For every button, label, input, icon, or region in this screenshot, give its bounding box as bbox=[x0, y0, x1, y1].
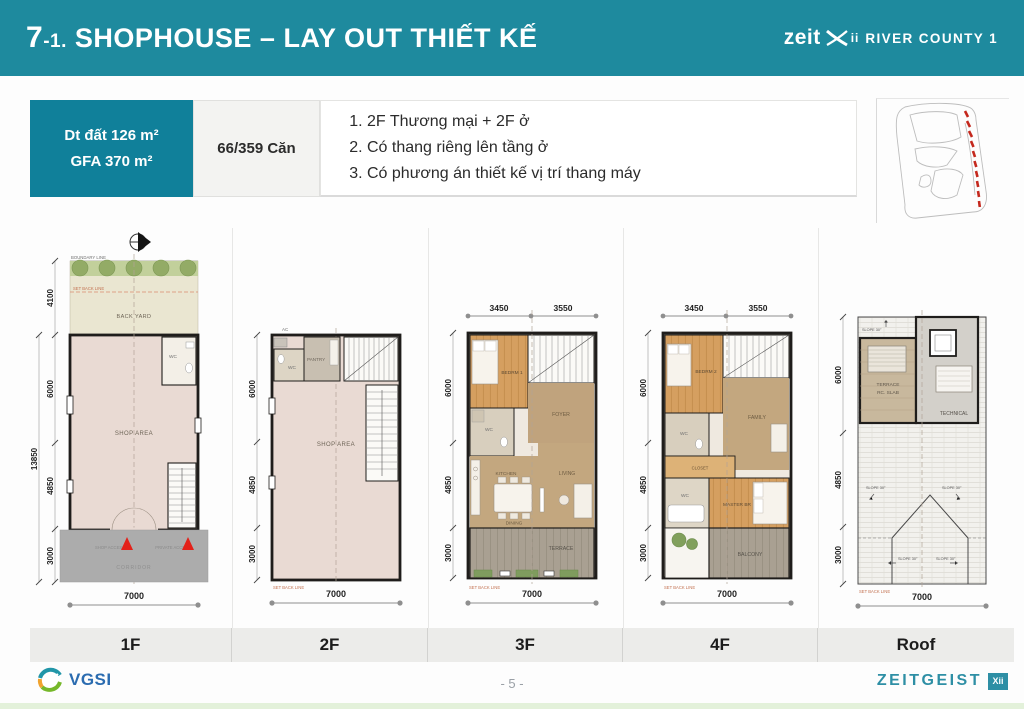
dim-4850: 4850 bbox=[46, 477, 55, 495]
vgsi-swirl-icon bbox=[36, 666, 64, 694]
floor-plan-1f: BOUNDARY LINE SET BACK LINE BACK YARD WC… bbox=[30, 228, 232, 628]
dim-6000: 6000 bbox=[248, 380, 257, 398]
page-number: - 5 - bbox=[0, 676, 1024, 691]
dim-6000: 6000 bbox=[46, 380, 55, 398]
bedroom-1: BEDRM 1 bbox=[470, 335, 528, 408]
dim-4100: 4100 bbox=[46, 289, 55, 307]
corridor-label: CORRIDOR bbox=[116, 565, 151, 571]
wc-lower-label: WC bbox=[681, 493, 690, 499]
site-map-icon bbox=[877, 99, 1009, 223]
terrace-label: TERRACE bbox=[877, 382, 900, 388]
dim-7000: 7000 bbox=[326, 589, 346, 599]
vgsi-name: VGSI bbox=[69, 670, 112, 690]
slope-label: SLOPE 30° bbox=[866, 486, 886, 490]
ac-unit bbox=[274, 338, 287, 347]
page-title: 7-1. SHOPHOUSE – LAY OUT THIẾT KẾ bbox=[26, 21, 537, 55]
setback-line-label: SET BACK LINE bbox=[859, 589, 890, 594]
title-number: 7 bbox=[26, 21, 43, 54]
ac-label: AC bbox=[282, 327, 289, 332]
boundary-line-label: BOUNDARY LINE bbox=[71, 255, 106, 260]
dim-7000: 7000 bbox=[912, 592, 932, 602]
zeit-x-icon bbox=[825, 29, 849, 47]
setback-line-label: SET BACK LINE bbox=[273, 585, 304, 590]
corridor-zone: SHOP ACCESS PRIVATE ACCESS CORRIDOR bbox=[60, 530, 208, 582]
bottom-dimension: 7000 bbox=[660, 589, 793, 606]
bedroom1-label: BEDRM 1 bbox=[501, 370, 523, 376]
sofa bbox=[574, 484, 592, 518]
zeitgeist-name: ZEITGEIST bbox=[877, 672, 982, 690]
roof-plan: TERRACE RC. SLAB TECHNICAL SLOPE 30° SLO… bbox=[818, 228, 1014, 628]
wc-room: WC bbox=[162, 337, 196, 385]
slope-label: SLOPE 30° bbox=[936, 557, 956, 561]
left-dimension-lines bbox=[840, 314, 846, 587]
wc-room: WC bbox=[274, 349, 304, 381]
dim-3000: 3000 bbox=[639, 544, 648, 562]
dim-3450: 3450 bbox=[685, 303, 704, 313]
open-area bbox=[665, 528, 709, 578]
gfa-text: GFA 370 m² bbox=[71, 153, 153, 170]
technical-label: TECHNICAL bbox=[940, 411, 969, 417]
slope-label: SLOPE 30° bbox=[942, 486, 962, 490]
wc-room: WC bbox=[470, 408, 514, 456]
title-subnumber: -1. bbox=[43, 31, 67, 52]
dim-3000: 3000 bbox=[444, 544, 453, 562]
floor-label-4f: 4F bbox=[623, 628, 818, 662]
left-dimension-lines bbox=[645, 330, 651, 581]
north-arrow-icon bbox=[130, 232, 151, 252]
slope-label: SLOPE 30° bbox=[862, 328, 882, 332]
left-dimension-lines bbox=[450, 330, 456, 581]
wc-upper-label: WC bbox=[680, 431, 689, 437]
bottom-dimension: 7000 bbox=[67, 591, 200, 608]
land-area-text: Dt đất 126 m² bbox=[64, 127, 158, 144]
floor-label-1f: 1F bbox=[30, 628, 232, 662]
bottom-dimension: 7000 bbox=[855, 592, 988, 609]
floor-plan-2f: AC WC PANTRY SHOP bbox=[232, 228, 428, 628]
foyer-label: FOYER bbox=[552, 412, 570, 418]
dim-13850: 13850 bbox=[30, 447, 39, 470]
technical-room: TECHNICAL bbox=[916, 317, 978, 423]
balcony-label: BALCONY bbox=[738, 552, 763, 558]
dim-3550: 3550 bbox=[749, 303, 768, 313]
dim-6000: 6000 bbox=[834, 366, 843, 384]
zeitgeist-xii-badge: Xii bbox=[988, 673, 1008, 690]
dim-7000: 7000 bbox=[522, 589, 542, 599]
stair bbox=[168, 463, 196, 528]
dim-7000: 7000 bbox=[717, 589, 737, 599]
dim-4850: 4850 bbox=[248, 476, 257, 494]
bottom-dimension: 7000 bbox=[269, 589, 402, 606]
unit-count-text: 66/359 Căn bbox=[217, 140, 295, 157]
floor-plan-4f: 3450 3550 BEDRM 2 FAMILY WC CLO bbox=[623, 228, 818, 628]
wc-upper-room: WC bbox=[665, 413, 709, 456]
brand-zeit: zeit bbox=[784, 26, 821, 50]
stair bbox=[723, 335, 789, 378]
dim-3450: 3450 bbox=[490, 303, 509, 313]
closet-label: CLOSET bbox=[692, 466, 709, 471]
brand-xii: ii bbox=[851, 31, 860, 45]
stair bbox=[528, 335, 594, 383]
stair-top bbox=[344, 337, 398, 381]
stair-side bbox=[366, 385, 398, 481]
closet-zone: CLOSET bbox=[665, 456, 735, 478]
rc-slab-label: RC. SLAB bbox=[877, 390, 899, 396]
wc-lower-room: WC bbox=[665, 478, 709, 528]
balcony-zone: BALCONY bbox=[709, 528, 789, 578]
wc-label: WC bbox=[288, 365, 297, 371]
zeitgeist-logo: ZEITGEIST Xii bbox=[877, 672, 1008, 690]
brand-logo: zeit ii RIVER COUNTY 1 bbox=[784, 26, 998, 50]
wc-label: WC bbox=[485, 427, 494, 433]
slide: 7-1. SHOPHOUSE – LAY OUT THIẾT KẾ zeit i… bbox=[0, 0, 1024, 709]
site-map-thumbnail bbox=[876, 98, 1009, 223]
title-text: SHOPHOUSE – LAY OUT THIẾT KẾ bbox=[75, 23, 538, 53]
dim-7000: 7000 bbox=[124, 591, 144, 601]
note-item: Có thang riêng lên tầng ở bbox=[367, 135, 641, 161]
dim-4850: 4850 bbox=[834, 471, 843, 489]
bedroom-2: BEDRM 2 bbox=[665, 335, 723, 413]
dim-3550: 3550 bbox=[554, 303, 573, 313]
floor-label-strip: 1F 2F 3F 4F Roof bbox=[30, 628, 1014, 662]
floor-label-roof: Roof bbox=[818, 628, 1014, 662]
terrace-rc-slab: TERRACE RC. SLAB bbox=[860, 338, 916, 423]
terrace-label: TERRACE bbox=[549, 546, 574, 552]
bottom-dimension: 7000 bbox=[465, 589, 598, 606]
notes-box: 2F Thương mại + 2F ở Có thang riêng lên … bbox=[320, 100, 857, 197]
brand-river-county: RIVER COUNTY 1 bbox=[865, 31, 998, 46]
header-bar: 7-1. SHOPHOUSE – LAY OUT THIẾT KẾ zeit i… bbox=[0, 0, 1024, 76]
shop-area-label: SHOP AREA bbox=[115, 431, 153, 437]
dim-3000: 3000 bbox=[834, 546, 843, 564]
dim-3000: 3000 bbox=[46, 547, 55, 565]
wc-label: WC bbox=[169, 354, 178, 360]
dining-label: DINING bbox=[506, 521, 523, 527]
dim-4850: 4850 bbox=[639, 476, 648, 494]
kitchen-label: KITCHEN bbox=[495, 471, 517, 477]
area-info-box: Dt đất 126 m² GFA 370 m² bbox=[30, 100, 193, 197]
floor-plan-3f: 3450 3550 BEDRM 1 FOYER WC bbox=[428, 228, 623, 628]
floor-label-3f: 3F bbox=[428, 628, 623, 662]
bottom-edge-strip bbox=[0, 703, 1024, 709]
dim-3000: 3000 bbox=[248, 545, 257, 563]
pantry-label: PANTRY bbox=[307, 357, 325, 362]
dim-6000: 6000 bbox=[639, 379, 648, 397]
unit-count-box: 66/359 Căn bbox=[193, 100, 320, 197]
setback-line-label: SET BACK LINE bbox=[469, 585, 500, 590]
family-label: FAMILY bbox=[748, 415, 767, 421]
note-item: 2F Thương mại + 2F ở bbox=[367, 109, 641, 135]
dim-6000: 6000 bbox=[444, 379, 453, 397]
shop-area-label: SHOP AREA bbox=[317, 442, 355, 448]
bedroom2-label: BEDRM 2 bbox=[695, 369, 717, 375]
floor-label-2f: 2F bbox=[232, 628, 428, 662]
vgsi-logo: VGSI bbox=[36, 666, 112, 694]
dim-4850: 4850 bbox=[444, 476, 453, 494]
note-item: Có phương án thiết kế vị trí thang máy bbox=[367, 161, 641, 187]
setback-line-label: SET BACK LINE bbox=[73, 286, 104, 291]
living-label: LIVING bbox=[559, 471, 576, 477]
slope-label: SLOPE 30° bbox=[898, 557, 918, 561]
master-bedroom: MASTER BR bbox=[709, 478, 789, 528]
shop-access-label: SHOP ACCESS bbox=[95, 545, 125, 550]
pantry-room: PANTRY bbox=[304, 337, 340, 381]
notes-list: 2F Thương mại + 2F ở Có thang riêng lên … bbox=[321, 109, 641, 187]
setback-line-label: SET BACK LINE bbox=[664, 585, 695, 590]
